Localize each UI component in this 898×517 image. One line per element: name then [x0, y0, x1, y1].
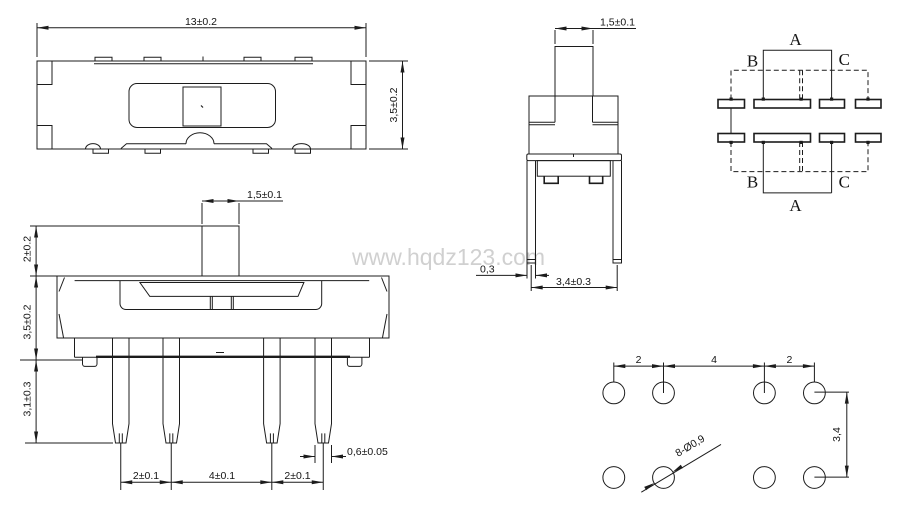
- svg-text:A: A: [789, 30, 802, 49]
- svg-text:www.hqdz123.com: www.hqdz123.com: [351, 244, 545, 270]
- svg-text:2±0.1: 2±0.1: [284, 470, 310, 482]
- svg-text:3,4±0.3: 3,4±0.3: [556, 276, 591, 288]
- svg-text:2±0.1: 2±0.1: [133, 470, 159, 482]
- svg-text:B: B: [747, 173, 758, 192]
- svg-text:2: 2: [786, 354, 792, 366]
- svg-text:0,3: 0,3: [480, 264, 495, 276]
- svg-text:2±0.2: 2±0.2: [22, 236, 34, 262]
- svg-text:3,5±0.2: 3,5±0.2: [22, 304, 34, 339]
- svg-text:1,5±0.1: 1,5±0.1: [600, 17, 635, 29]
- svg-text:A: A: [789, 196, 802, 215]
- svg-text:3,4: 3,4: [831, 427, 843, 442]
- svg-text:C: C: [839, 173, 850, 192]
- svg-text:1,5±0.1: 1,5±0.1: [247, 189, 282, 201]
- svg-text:4: 4: [711, 354, 717, 366]
- svg-text:B: B: [747, 52, 758, 71]
- svg-text:4±0.1: 4±0.1: [209, 470, 235, 482]
- svg-text:C: C: [839, 50, 850, 69]
- svg-text:13±0.2: 13±0.2: [185, 16, 217, 28]
- svg-text:2: 2: [636, 354, 642, 366]
- svg-text:0,6±0.05: 0,6±0.05: [347, 446, 388, 458]
- svg-text:3,5±0.2: 3,5±0.2: [388, 87, 400, 122]
- svg-text:3,1±0.3: 3,1±0.3: [22, 381, 34, 416]
